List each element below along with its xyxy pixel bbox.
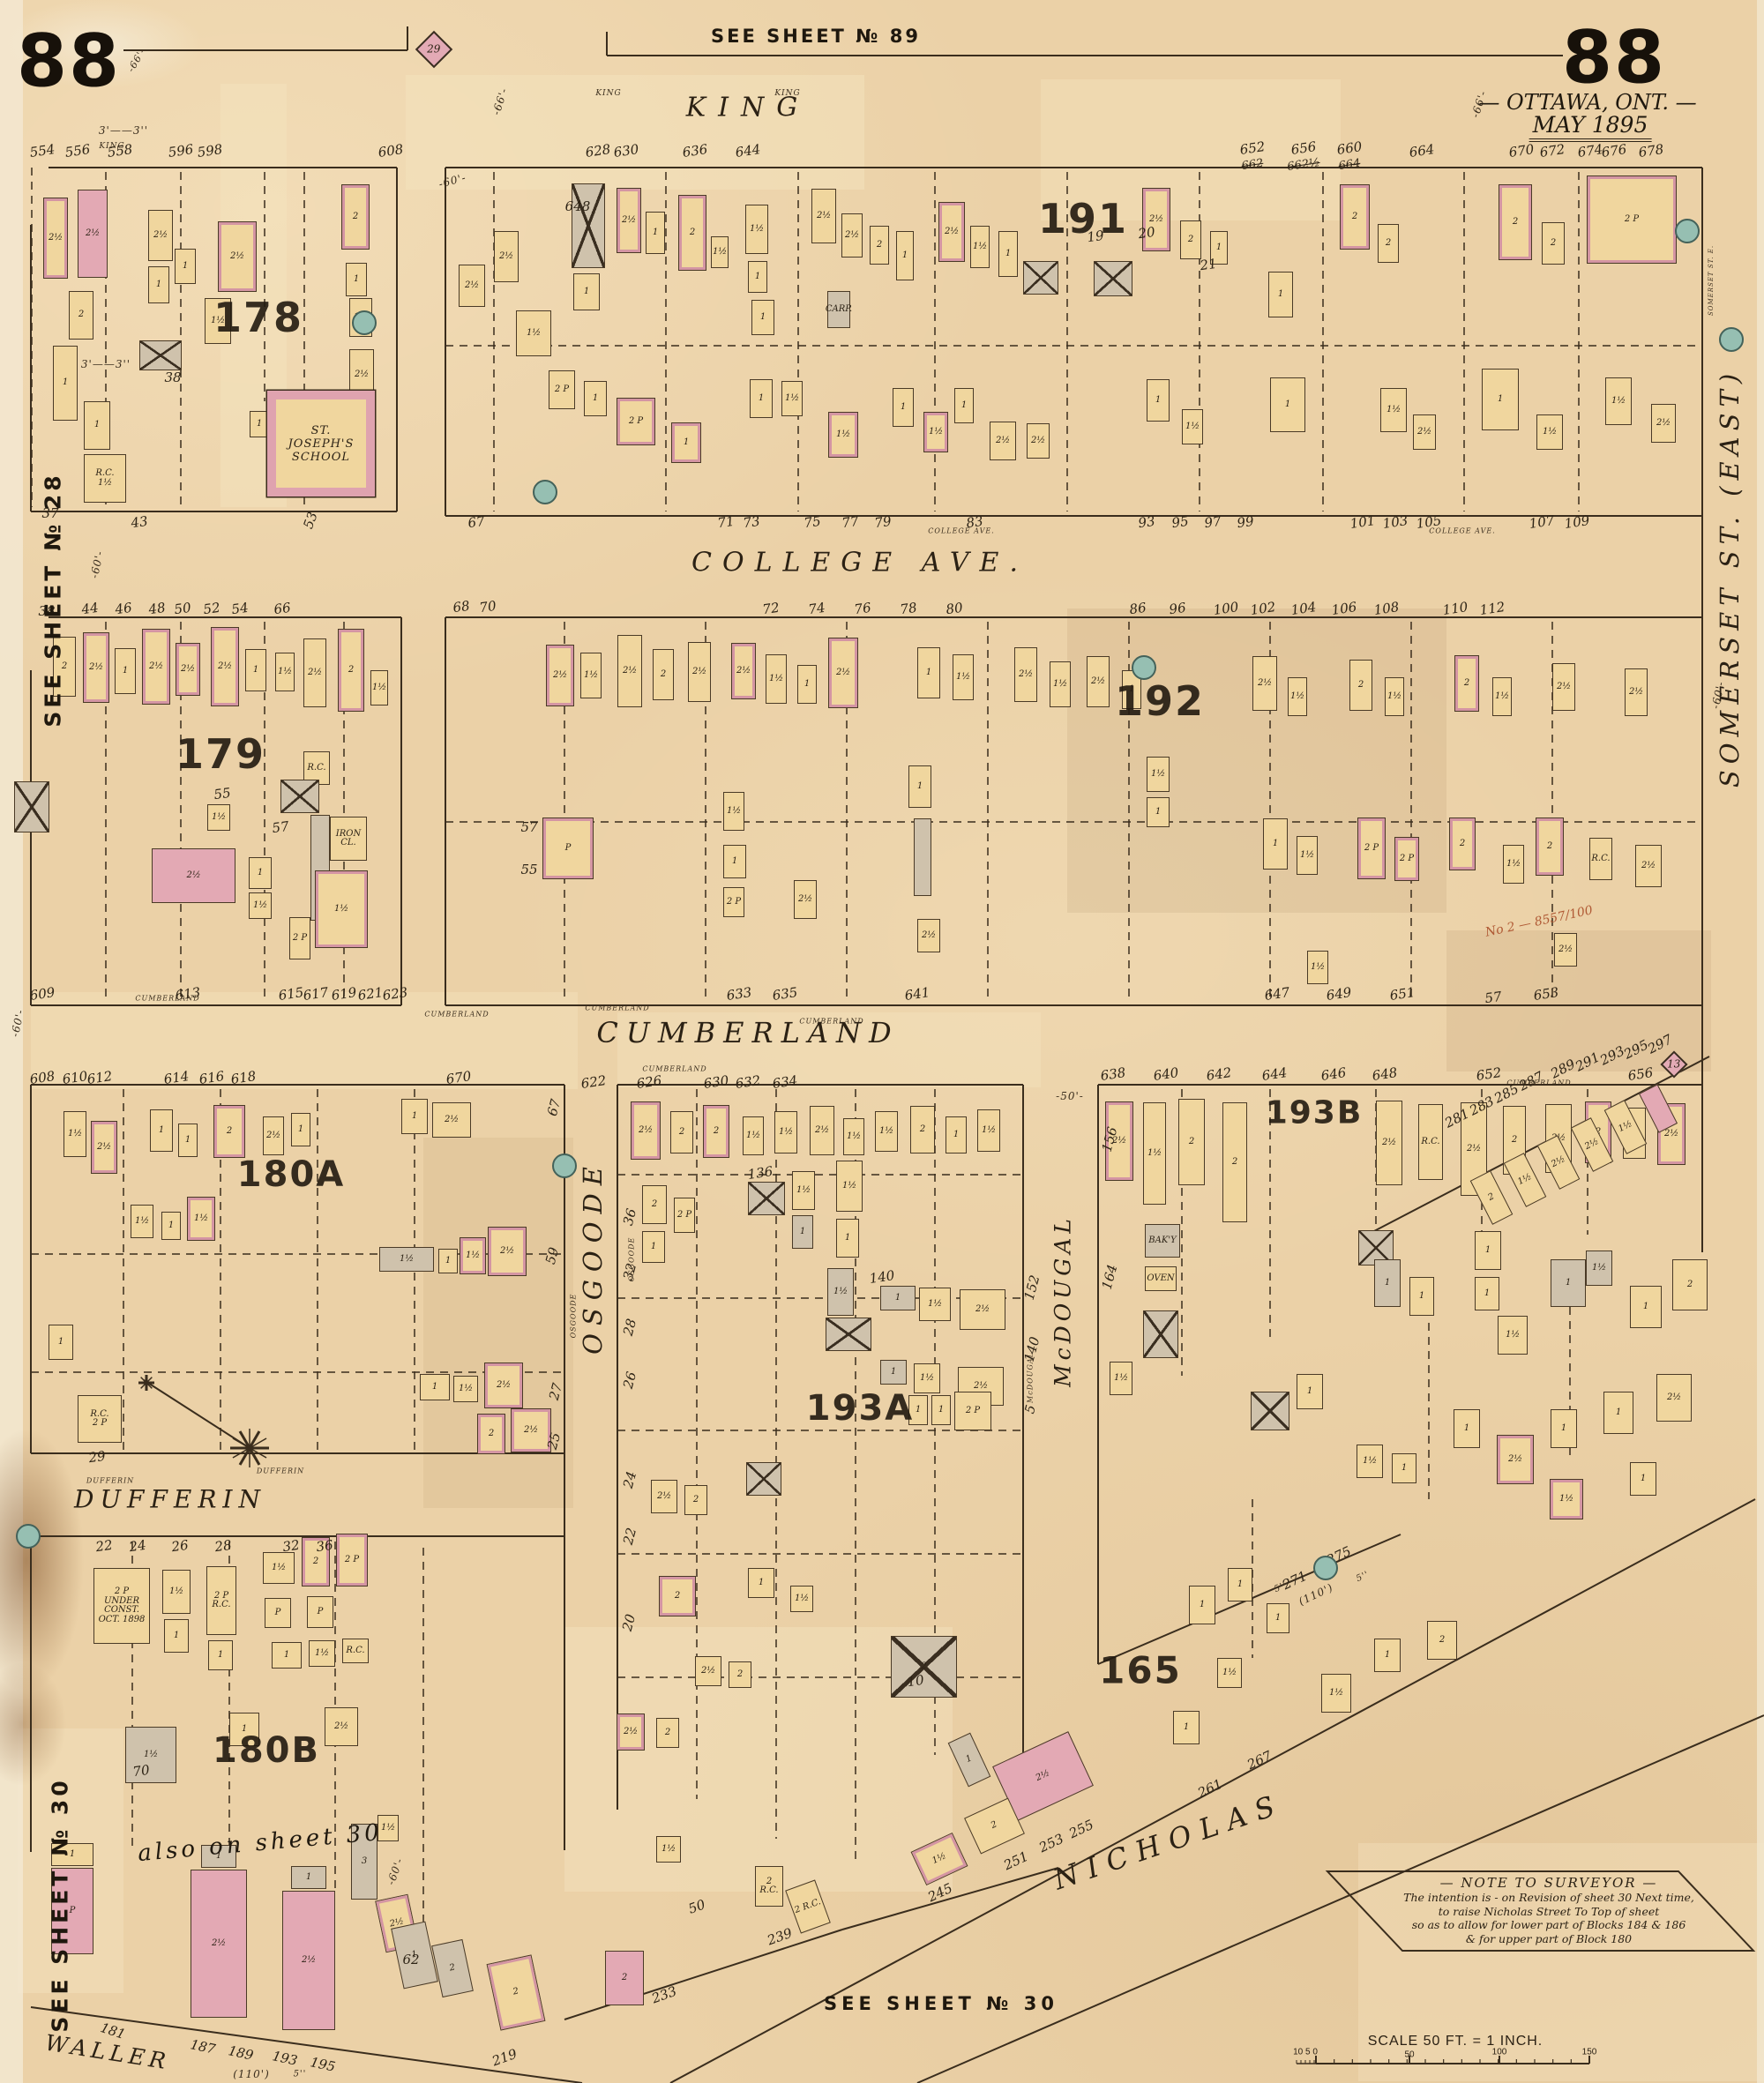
building-footprint: 1	[751, 300, 774, 335]
building-label: 2½	[465, 281, 479, 291]
building-label: 1	[965, 1754, 974, 1765]
building-label: 2	[1386, 239, 1391, 249]
house-number: 38	[164, 370, 181, 385]
building-footprint: 2½	[695, 1656, 721, 1686]
building-footprint: 2	[910, 1106, 935, 1153]
building-label: 2½	[355, 370, 369, 380]
building-label: 1	[891, 1368, 896, 1377]
house-number: 95	[1170, 513, 1189, 531]
building-footprint: 2½	[44, 198, 67, 278]
building-label: 1	[901, 403, 906, 413]
building-label: 2½	[1656, 419, 1671, 429]
street-label-king: KING	[686, 93, 810, 123]
building-footprint: 2 P	[1588, 176, 1676, 263]
building-footprint: P	[265, 1598, 291, 1628]
building-footprint: 2½	[148, 210, 173, 261]
building-footprint: 1½	[743, 1116, 764, 1155]
note-line: to raise Nicholas Street To Top of sheet	[1381, 1905, 1716, 1919]
building-label: 2½	[817, 212, 831, 221]
small-annotation: KING	[99, 142, 124, 151]
street-label-osgoode: OSGOODE	[578, 1159, 608, 1355]
house-number: 29	[87, 1448, 106, 1466]
building-label: 2½	[334, 1722, 348, 1732]
building-footprint: 1	[896, 231, 914, 280]
street-label-mcdougal: McDOUGAL	[1050, 1214, 1076, 1387]
building-footprint: 2	[1222, 1102, 1247, 1222]
building-label: 3	[362, 1857, 367, 1867]
building-footprint: 2½	[494, 231, 519, 282]
building-label: 2 P	[345, 1556, 359, 1565]
building-label: 2½	[975, 1305, 990, 1315]
building-footprint: 1½	[914, 1363, 940, 1393]
building-label: 2	[661, 670, 666, 680]
building-footprint: 1	[53, 346, 78, 421]
building-label: 1	[156, 280, 161, 290]
building-label: 1	[94, 421, 100, 430]
building-footprint: 1	[1475, 1277, 1499, 1310]
building-footprint: 1	[1147, 379, 1170, 422]
building-label: 1½	[661, 1845, 676, 1855]
house-number: 46	[114, 600, 132, 617]
building-footprint: 1	[642, 1231, 665, 1263]
building-footprint: 2½	[143, 630, 169, 704]
house-number: 70	[478, 598, 497, 616]
building-label: 1½	[144, 1751, 158, 1760]
building-label: P	[275, 1609, 281, 1618]
building-footprint: R.C.	[1589, 838, 1612, 880]
building-label: 1½	[1311, 963, 1325, 973]
building-label: 1½	[1516, 1173, 1533, 1188]
building-footprint: 2 P	[549, 370, 575, 409]
building-footprint: 2	[642, 1185, 667, 1224]
building-label: 2	[227, 1127, 232, 1137]
building-footprint: 2½	[1635, 845, 1662, 887]
house-number: 71	[716, 513, 735, 531]
building-footprint: 1	[1263, 818, 1288, 870]
building-label: 2½	[445, 1116, 459, 1125]
building-label: 1½	[1543, 428, 1557, 437]
scale-tick-label: 100	[1492, 2048, 1507, 2057]
building-label: 1	[168, 1221, 174, 1231]
house-number: 68	[452, 598, 470, 616]
building-label: 1	[759, 1579, 764, 1588]
building-label: 1½	[527, 329, 541, 339]
building-footprint: 1½	[1143, 1102, 1166, 1205]
building-footprint: 1½	[953, 654, 974, 700]
building-label: ST. JOSEPH'S SCHOOL	[276, 424, 366, 464]
house-number: 36	[315, 1537, 333, 1555]
building-label: 1½	[1151, 770, 1165, 780]
building-label: 2	[1687, 1280, 1693, 1290]
building-footprint: 1	[1551, 1409, 1577, 1448]
building-label: 2 P UNDER CONST. OCT. 1898	[94, 1587, 149, 1624]
building-label: 1	[938, 1406, 944, 1415]
building-label: 2	[449, 1963, 456, 1974]
house-number: 77	[841, 513, 859, 531]
building-label: 2 P	[629, 417, 643, 427]
building-footprint: 2 P R.C.	[206, 1566, 236, 1635]
building-label: 1½	[1611, 397, 1626, 407]
building-label: 1	[732, 857, 737, 867]
building-footprint: 1½	[1498, 1316, 1528, 1355]
building-label: 1½	[847, 1132, 861, 1142]
building-label: 2	[348, 666, 354, 676]
building-label: 1½	[1363, 1457, 1377, 1467]
building-footprint: 1½	[370, 670, 388, 706]
building-footprint: 1	[1630, 1462, 1656, 1496]
house-number: 43	[130, 513, 148, 531]
building-label: 1½	[584, 671, 598, 681]
building-label: 1	[760, 313, 766, 323]
building-label: 2	[990, 1820, 998, 1831]
building-label: 2½	[1258, 679, 1272, 689]
building-footprint: 1	[1147, 797, 1170, 827]
building-label: 2	[665, 1728, 670, 1738]
building-label: 2 P	[966, 1407, 980, 1416]
building-label: 1	[1216, 243, 1222, 253]
building-label: 1	[298, 1125, 303, 1135]
house-number: 50	[173, 600, 191, 617]
building-label: 1	[961, 401, 967, 411]
building-label: 2½	[49, 234, 63, 243]
building-footprint: 1	[420, 1374, 450, 1400]
note-line: The intention is - on Revision of sheet …	[1381, 1891, 1716, 1905]
house-number: 97	[1203, 513, 1222, 531]
building-label: 1	[63, 378, 68, 388]
building-footprint: 1	[1297, 1374, 1323, 1409]
building-label: 1½	[929, 428, 943, 437]
hydrant-dot	[1313, 1556, 1338, 1580]
building-label: 2½	[1583, 1138, 1600, 1153]
house-number: 72	[761, 600, 780, 617]
sheet-number-top-left: 88	[17, 20, 121, 104]
building-footprint: 2½	[617, 635, 642, 707]
building-label: 1	[1385, 1279, 1390, 1288]
building-footprint: 2½	[325, 1707, 358, 1746]
street-label-dufferin: DUFFERIN	[74, 1485, 266, 1514]
building-label: 1½	[1559, 1495, 1573, 1504]
building-label: 2	[1551, 239, 1556, 249]
building-label: 2½	[798, 895, 812, 905]
building-footprint: 1	[584, 381, 607, 416]
building-footprint: 1½	[1357, 1445, 1383, 1478]
building-label: 1	[1005, 250, 1011, 259]
building-label: 1½	[920, 1374, 934, 1384]
building-footprint: 2	[670, 1111, 693, 1153]
note-line: so as to allow for lower part of Blocks …	[1381, 1918, 1716, 1932]
building-footprint: 2½	[78, 190, 108, 278]
building-footprint: 1	[1267, 1603, 1289, 1633]
building-footprint	[1094, 261, 1132, 296]
building-footprint: 2½	[794, 880, 817, 919]
building-footprint: 2	[1341, 185, 1369, 249]
house-number: 76	[853, 600, 871, 617]
building-footprint: 1	[836, 1219, 859, 1258]
building-label: 2	[652, 1200, 657, 1210]
building-footprint	[572, 183, 605, 268]
building-label: 1	[58, 1338, 64, 1348]
building-footprint: 2½	[990, 422, 1016, 460]
building-label: 1½	[278, 668, 292, 677]
building-footprint: P	[307, 1596, 333, 1628]
small-annotation: 5''	[294, 2070, 307, 2079]
building-label: 2 P R.C.	[212, 1592, 230, 1610]
building-label: 1	[1184, 1723, 1189, 1733]
building-label: 1½	[1495, 692, 1509, 702]
house-number: 66	[273, 600, 291, 617]
house-number: 93	[1137, 513, 1155, 531]
building-label: 2	[1513, 218, 1518, 228]
building-label: 1½	[315, 1649, 329, 1659]
small-annotation: DUFFERIN	[86, 1477, 134, 1485]
building-footprint: 2 P	[289, 917, 310, 959]
small-annotation: (110')	[233, 2068, 270, 2080]
building-footprint: 2	[729, 1661, 751, 1688]
building-label: 1	[432, 1383, 437, 1392]
building-footprint: R.C.	[1418, 1104, 1443, 1180]
building-label: 2	[1460, 840, 1465, 849]
building-label: 1	[593, 394, 598, 404]
scale-tick-label: 10 5 0	[1293, 2048, 1318, 2057]
building-footprint: 2	[1499, 185, 1531, 259]
st-josephs-school-building: ST. JOSEPH'S SCHOOL	[267, 391, 375, 496]
building-footprint	[746, 1462, 781, 1496]
building-label: 2½	[266, 1131, 280, 1141]
building-footprint: 2	[478, 1415, 505, 1453]
building-footprint: 1	[748, 1568, 774, 1598]
house-number: 28	[213, 1537, 232, 1555]
building-label: 2½	[499, 252, 513, 262]
building-footprint: 1	[573, 273, 600, 310]
building-label: 2½	[1508, 1455, 1522, 1465]
building-label: 2½	[1558, 945, 1573, 955]
building-footprint: 1	[401, 1099, 428, 1134]
building-label: 1	[1464, 1424, 1469, 1434]
house-number: 24	[128, 1537, 146, 1555]
building-label: 2 P	[555, 385, 569, 395]
building-label: 2½	[845, 231, 859, 241]
building-label: 1½	[842, 1182, 856, 1191]
building-label: 1	[1273, 840, 1278, 849]
building-footprint: 2	[1536, 818, 1563, 875]
building-label: 2½	[622, 216, 636, 226]
building-label: 2½	[524, 1426, 538, 1436]
house-number: 74	[807, 600, 826, 617]
house-number: 52	[202, 600, 220, 617]
building-label: 1½	[746, 1131, 760, 1141]
building-label: 1½	[956, 673, 970, 683]
building-footprint	[748, 1182, 785, 1215]
building-footprint: 1½	[1110, 1362, 1132, 1395]
building-footprint: 1½	[711, 236, 729, 268]
building-label: 1	[584, 287, 589, 297]
building-label: 1	[1385, 1651, 1390, 1661]
building-label: 1	[1498, 395, 1503, 405]
building-footprint: 2	[653, 649, 674, 700]
building-footprint: 2	[342, 185, 369, 249]
building-label: R.C.	[307, 764, 325, 773]
building-label: 1	[1484, 1289, 1490, 1299]
building-footprint: 1½	[1307, 951, 1328, 984]
building-label: 1	[1641, 1475, 1646, 1484]
building-label: 2	[737, 1670, 743, 1680]
house-number: 21	[1199, 256, 1217, 273]
building-label: 2½	[639, 1126, 653, 1136]
building-footprint: 1½	[453, 1376, 478, 1402]
building-label: 2	[714, 1127, 719, 1137]
house-number: 73	[742, 513, 760, 531]
scale-label: SCALE 50 FT. = 1 INCH.	[1368, 2034, 1543, 2049]
building-label: 1	[174, 1631, 179, 1641]
building-label: 1	[1285, 400, 1290, 410]
building-footprint: 1	[893, 388, 914, 427]
see-sheet-28-label: SEE SHEET № 28	[41, 472, 66, 727]
building-label: R.C. 1½	[95, 469, 114, 488]
building-label: 1½	[713, 248, 727, 258]
building-label: 1½	[769, 675, 783, 684]
building-label: 2½	[218, 662, 232, 672]
building-label: 1½	[1387, 406, 1401, 415]
building-footprint: 1½	[766, 654, 787, 704]
building-footprint: 1½	[1050, 661, 1071, 707]
building-footprint: 2½	[263, 1116, 284, 1155]
building-label: 2	[693, 1496, 699, 1505]
house-number: 79	[873, 513, 892, 531]
building-label: 1½	[135, 1217, 149, 1227]
building-footprint: 1½	[263, 1552, 295, 1584]
building-label: P	[318, 1608, 324, 1617]
building-footprint: 2½	[1552, 663, 1575, 711]
building-footprint: 1	[291, 1866, 326, 1889]
building-label: 2½	[1149, 215, 1163, 225]
building-footprint: 2½	[282, 1891, 335, 2030]
building-footprint: 2½	[1656, 1374, 1692, 1422]
building-footprint: 1½	[656, 1836, 681, 1863]
building-footprint: 1	[208, 1640, 233, 1670]
house-number: 648	[565, 198, 591, 214]
house-number: 57	[1484, 989, 1502, 1006]
building-footprint: 2	[1672, 1259, 1708, 1310]
building-label: 2	[1189, 1138, 1194, 1147]
building-label: 2	[489, 1430, 494, 1439]
building-footprint: 1½	[836, 1161, 863, 1212]
building-footprint: 2	[679, 196, 706, 270]
building-label: 1	[1616, 1408, 1621, 1418]
building-footprint: 2	[704, 1106, 729, 1157]
building-footprint: 2	[1349, 660, 1372, 711]
building-footprint: 1	[49, 1325, 73, 1360]
building-footprint: 2	[1378, 224, 1399, 263]
building-label: 1	[1485, 1246, 1491, 1256]
building-label: 2½	[86, 229, 100, 239]
building-footprint: 1	[115, 648, 136, 694]
building-label: CARP.	[826, 305, 852, 315]
building-footprint: 2 P	[674, 1198, 695, 1233]
house-number: 26	[170, 1537, 189, 1555]
date-label: MAY 1895	[1529, 112, 1652, 142]
building-label: 2½	[623, 667, 637, 676]
building-footprint	[1023, 261, 1058, 295]
building-footprint: 2½	[1252, 656, 1277, 711]
hydrant-dot	[1132, 655, 1156, 680]
building-footprint: 1½	[1605, 377, 1632, 425]
building-label: 2	[1232, 1158, 1237, 1168]
building-label: 1	[804, 680, 810, 690]
building-label: 1	[123, 667, 128, 676]
building-label: 2 R.C.	[794, 1898, 822, 1915]
building-footprint: 2 P	[723, 887, 744, 917]
building-footprint: 1	[1228, 1568, 1252, 1601]
small-annotation: KING	[595, 89, 621, 98]
building-footprint: 1	[1454, 1409, 1480, 1448]
building-footprint: 1½	[1551, 1480, 1582, 1519]
building-label: 2½	[149, 662, 163, 672]
building-label: 1½	[194, 1214, 208, 1224]
building-label: 1½	[973, 243, 987, 252]
building-label: 2½	[974, 1382, 988, 1392]
building-label: 2	[78, 310, 84, 320]
building-label: 1½	[459, 1385, 473, 1394]
building-label: 1	[916, 1406, 921, 1415]
building-label: 1	[759, 394, 764, 404]
hydrant-dot	[1675, 219, 1700, 243]
building-footprint: 1½	[774, 1111, 797, 1153]
building-footprint: 1½	[379, 1247, 434, 1272]
building-footprint: 2 P	[617, 399, 654, 444]
building-footprint: 1	[175, 249, 196, 284]
building-label: 1	[306, 1873, 311, 1883]
small-annotation: SOMERSET ST. E.	[1708, 245, 1715, 316]
building-footprint: 2½	[219, 222, 256, 291]
building-footprint: IRON CL.	[330, 817, 367, 861]
building-footprint: 1½	[843, 1118, 864, 1155]
building-footprint: 2½	[960, 1289, 1005, 1330]
building-label: 2½	[996, 437, 1010, 446]
house-number: 55	[520, 862, 537, 877]
building-footprint: 2½	[829, 638, 857, 707]
small-annotation: OSGOODE	[570, 1294, 578, 1339]
building-footprint: 1½	[207, 804, 230, 831]
building-footprint: 2½	[459, 265, 485, 307]
building-label: 1½	[1290, 692, 1304, 702]
building-footprint: 2½	[688, 642, 711, 702]
building-label: 1	[183, 262, 188, 272]
building-footprint: 2	[656, 1718, 679, 1748]
building-label: 2 R.C.	[756, 1878, 782, 1896]
building-footprint: 1½	[64, 1111, 86, 1157]
block-label-191: 191	[1038, 195, 1128, 243]
building-label: 1	[845, 1234, 850, 1243]
building-footprint: 1½	[1536, 414, 1563, 450]
building-label: 1	[1278, 290, 1283, 300]
building-label: 2½	[553, 671, 567, 681]
building-label: 1½	[1222, 1669, 1237, 1678]
building-label: 1½	[1592, 1264, 1606, 1273]
street-label-college-ave-: COLLEGE AVE.	[691, 548, 1028, 579]
building-label: 1½	[1329, 1689, 1343, 1699]
building-footprint: 2	[684, 1485, 707, 1515]
building-label: 1½	[68, 1130, 82, 1139]
building-footprint: 1	[1603, 1392, 1633, 1434]
building-label: 2½	[624, 1728, 638, 1737]
building-footprint: 1	[178, 1124, 198, 1157]
block-label-192: 192	[1115, 677, 1205, 725]
building-label: 2	[1487, 1192, 1496, 1203]
building-footprint: 1½	[924, 413, 947, 452]
building-label: 2½	[701, 1667, 715, 1676]
building-footprint: 1½	[970, 226, 990, 268]
building-label: 2½	[181, 665, 195, 675]
